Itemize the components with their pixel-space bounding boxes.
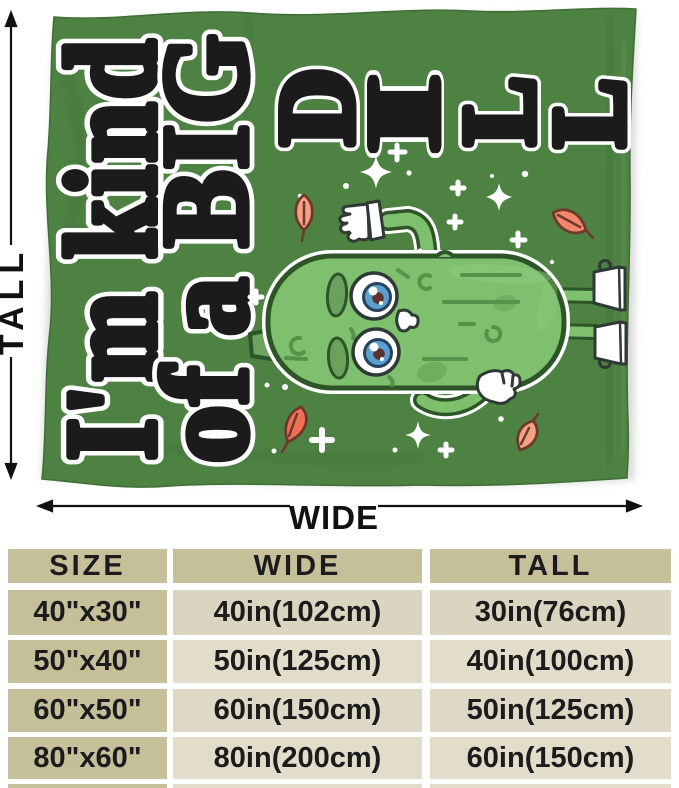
svg-text:L: L <box>533 79 646 147</box>
svg-text:WIDE: WIDE <box>289 499 379 536</box>
svg-text:TALL: TALL <box>0 247 31 355</box>
svg-text:of a BIG: of a BIG <box>138 33 272 463</box>
